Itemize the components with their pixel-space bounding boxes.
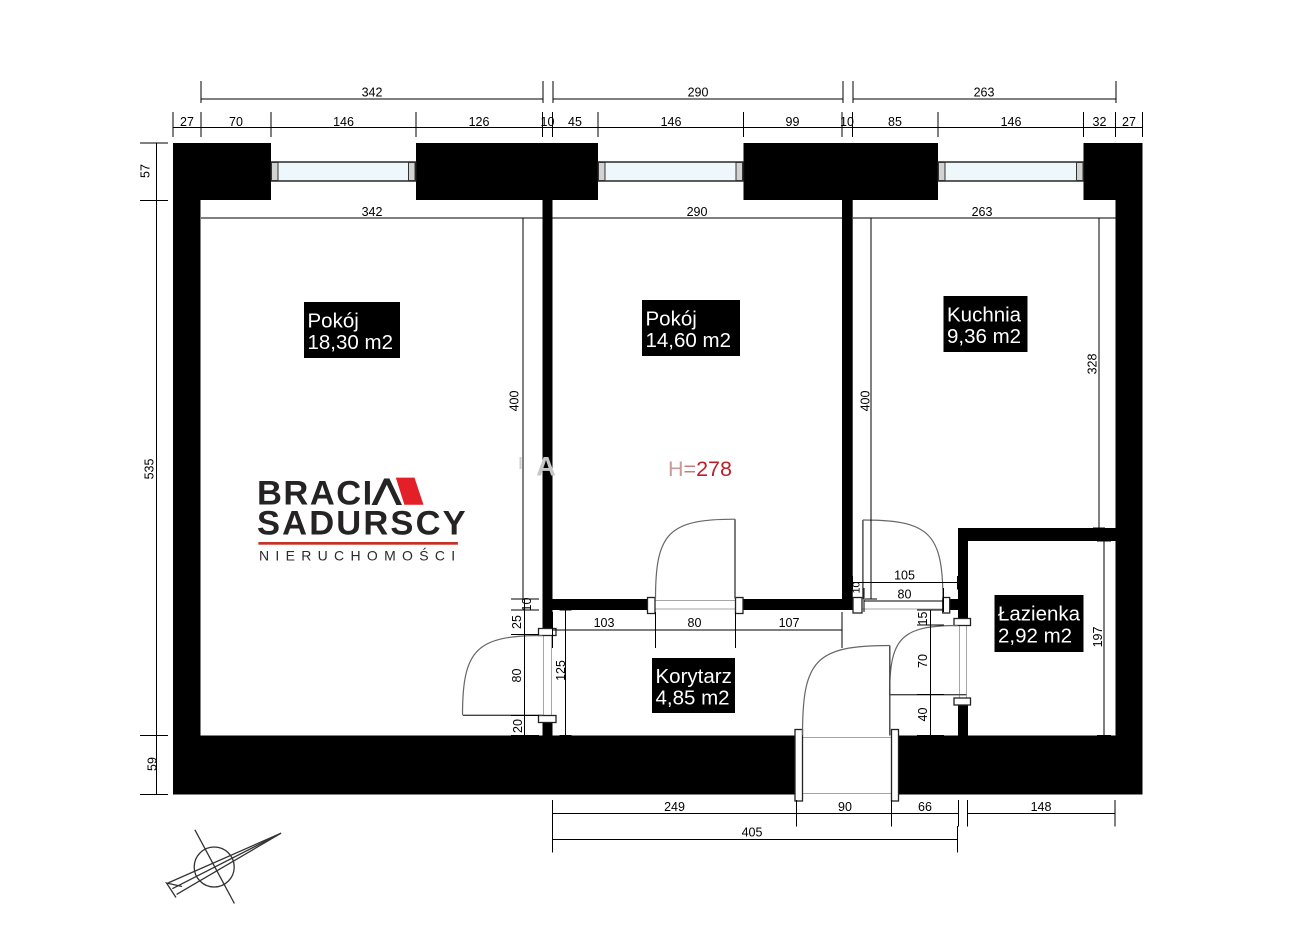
svg-text:342: 342 <box>362 205 383 219</box>
svg-text:15: 15 <box>916 612 930 626</box>
svg-text:10: 10 <box>840 115 854 129</box>
svg-text:80: 80 <box>510 669 524 683</box>
svg-text:342: 342 <box>362 86 383 100</box>
svg-text:405: 405 <box>742 826 763 840</box>
svg-text:45: 45 <box>568 115 582 129</box>
svg-text:10: 10 <box>520 598 534 612</box>
svg-text:10: 10 <box>541 115 555 129</box>
svg-text:126: 126 <box>469 115 490 129</box>
svg-text:146: 146 <box>661 115 682 129</box>
svg-text:57: 57 <box>139 164 153 178</box>
svg-text:125: 125 <box>554 660 568 681</box>
svg-text:66: 66 <box>918 800 932 814</box>
svg-text:290: 290 <box>688 86 709 100</box>
svg-text:27: 27 <box>1122 115 1136 129</box>
svg-text:535: 535 <box>143 459 157 480</box>
svg-text:105: 105 <box>894 569 915 583</box>
svg-text:Łazienka: Łazienka <box>998 603 1081 626</box>
svg-text:A: A <box>536 452 556 482</box>
svg-text:146: 146 <box>333 115 354 129</box>
svg-text:328: 328 <box>1086 354 1100 375</box>
svg-text:27: 27 <box>180 115 194 129</box>
svg-text:NIERUCHOMOŚCI: NIERUCHOMOŚCI <box>259 547 461 564</box>
svg-text:400: 400 <box>508 391 522 412</box>
svg-text:32: 32 <box>1093 115 1107 129</box>
svg-text:9,36 m2: 9,36 m2 <box>947 325 1021 348</box>
svg-text:H=278: H=278 <box>668 457 732 481</box>
svg-text:197: 197 <box>1091 627 1105 648</box>
svg-text:80: 80 <box>898 588 912 602</box>
svg-text:148: 148 <box>1031 800 1052 814</box>
svg-text:20: 20 <box>511 719 525 733</box>
svg-text:107: 107 <box>779 616 800 630</box>
svg-text:70: 70 <box>916 654 930 668</box>
svg-text:18,30 m2: 18,30 m2 <box>308 331 393 354</box>
svg-text:85: 85 <box>888 115 902 129</box>
svg-text:146: 146 <box>1001 115 1022 129</box>
svg-text:70: 70 <box>229 115 243 129</box>
svg-text:59: 59 <box>146 757 160 771</box>
svg-text:99: 99 <box>786 115 800 129</box>
svg-text:10: 10 <box>851 582 863 594</box>
svg-text:290: 290 <box>687 205 708 219</box>
svg-text:Kuchnia: Kuchnia <box>947 304 1022 327</box>
svg-text:Pokój: Pokój <box>646 308 697 331</box>
svg-text:263: 263 <box>972 205 993 219</box>
svg-text:2,92 m2: 2,92 m2 <box>998 625 1072 648</box>
svg-text:25: 25 <box>510 615 524 629</box>
svg-text:249: 249 <box>664 800 685 814</box>
svg-text:400: 400 <box>859 391 873 412</box>
svg-text:14,60 m2: 14,60 m2 <box>646 329 731 352</box>
svg-text:40: 40 <box>916 708 930 722</box>
svg-text:80: 80 <box>688 616 702 630</box>
svg-text:4,85 m2: 4,85 m2 <box>656 687 730 710</box>
svg-text:103: 103 <box>594 616 615 630</box>
svg-text:Korytarz: Korytarz <box>656 665 732 688</box>
svg-text:90: 90 <box>838 800 852 814</box>
svg-text:Pokój: Pokój <box>308 310 359 333</box>
svg-text:263: 263 <box>974 86 995 100</box>
svg-text:SADURSCY: SADURSCY <box>257 505 468 543</box>
